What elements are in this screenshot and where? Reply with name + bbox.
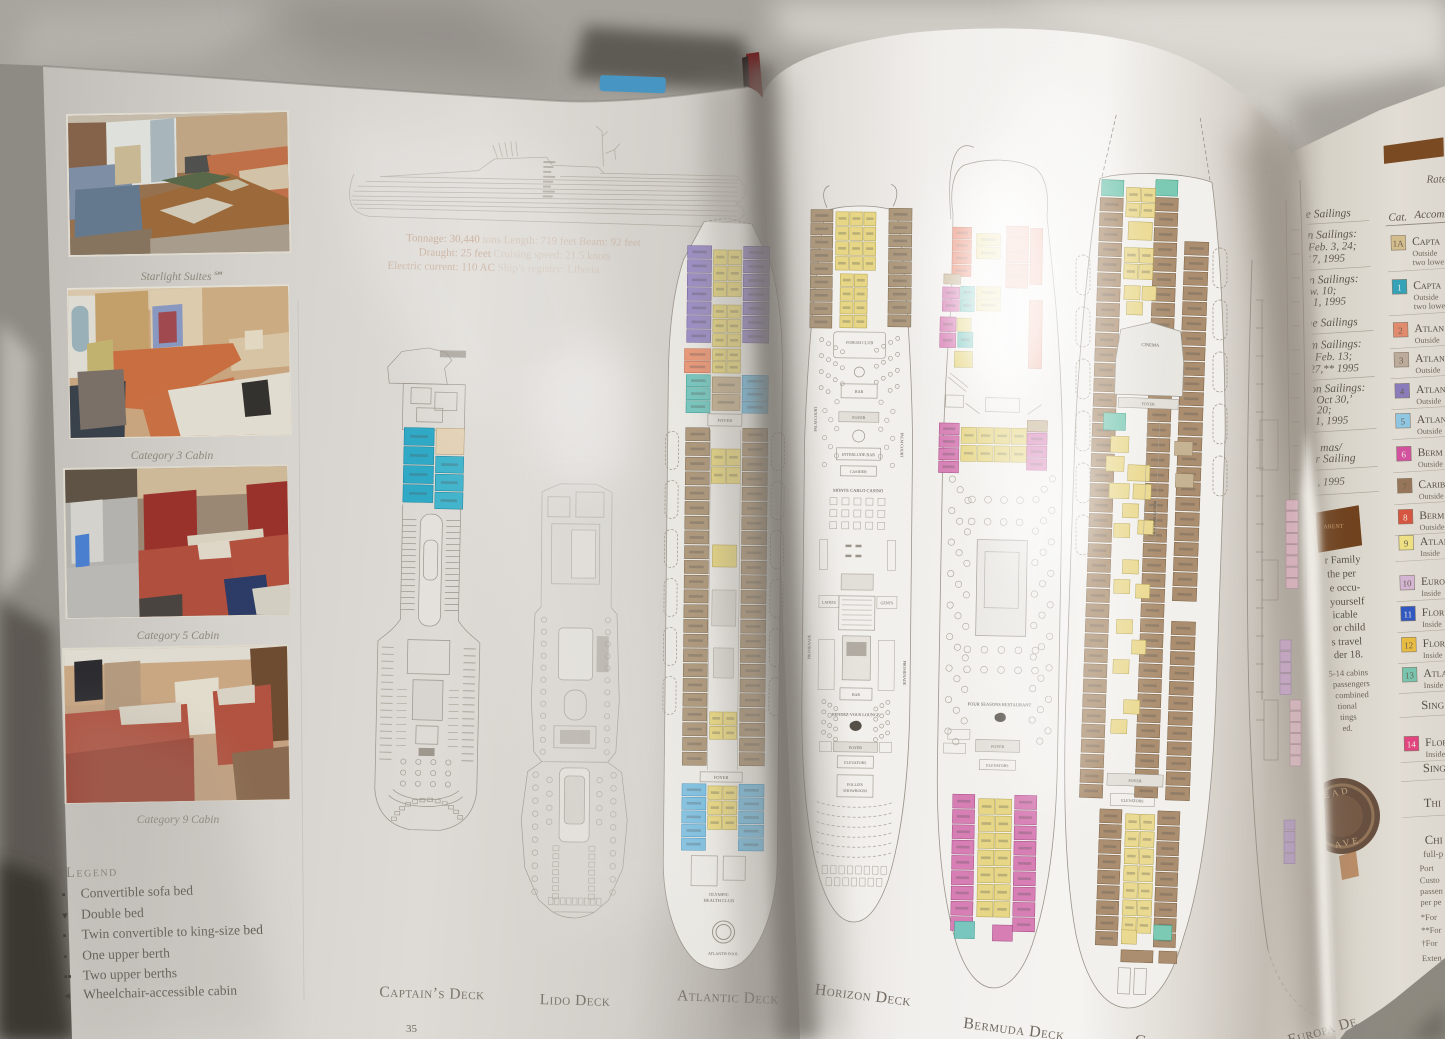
svg-text:1, 1995: 1, 1995: [1315, 414, 1349, 427]
svg-text:Inside: Inside: [1425, 749, 1445, 759]
svg-text:Inside: Inside: [1421, 589, 1441, 599]
svg-text:FOYER: FOYER: [849, 745, 862, 750]
svg-text:RENDEZ-VOUS LOUNGE: RENDEZ-VOUS LOUNGE: [832, 712, 880, 718]
svg-text:ELEVATORS: ELEVATORS: [986, 763, 1008, 768]
svg-text:ELEVATORS: ELEVATORS: [1121, 798, 1143, 804]
svg-text:Berm: Berm: [1417, 446, 1442, 459]
svg-text:passengers: passengers: [1333, 678, 1370, 689]
svg-text:†For: †For: [1421, 938, 1437, 948]
svg-text:Outside: Outside: [1417, 426, 1443, 436]
svg-text:Inside: Inside: [1423, 651, 1443, 661]
svg-text:▪: ▪: [61, 889, 65, 901]
svg-text:Outside: Outside: [1415, 335, 1441, 345]
svg-text:1, 1995: 1, 1995: [1313, 295, 1347, 308]
svg-text:14: 14: [1407, 739, 1417, 749]
svg-text:ATLANTIS POOL: ATLANTIS POOL: [708, 951, 739, 956]
svg-text:Outside: Outside: [1418, 459, 1444, 469]
svg-text:12: 12: [1404, 640, 1413, 650]
svg-text:Port: Port: [1419, 863, 1434, 873]
svg-text:two lowe: two lowe: [1413, 256, 1445, 267]
svg-text:8: 8: [1403, 512, 1408, 522]
svg-text:FOYER: FOYER: [852, 415, 865, 420]
svg-text:9: 9: [1404, 538, 1409, 548]
svg-text:CASHIER: CASHIER: [850, 469, 867, 474]
svg-text:1: 1: [1397, 282, 1402, 292]
svg-text:LADIES: LADIES: [822, 600, 836, 605]
svg-text:Berm: Berm: [1419, 509, 1444, 522]
svg-text:Rate: Rate: [1425, 173, 1445, 186]
svg-text:Chi: Chi: [1425, 833, 1443, 847]
svg-text:17, 1995: 17, 1995: [1306, 252, 1345, 265]
svg-text:6: 6: [1401, 449, 1406, 459]
svg-text:27,** 1995: 27,** 1995: [1309, 362, 1359, 376]
svg-text:Atlan: Atlan: [1415, 352, 1445, 365]
svg-text:Outside: Outside: [1415, 365, 1441, 375]
svg-text:FORUM CLUB: FORUM CLUB: [846, 340, 873, 345]
svg-text:m Sailings:: m Sailings:: [1309, 338, 1361, 352]
svg-text:Sing: Sing: [1423, 760, 1445, 775]
svg-text:Flor: Flor: [1422, 637, 1445, 650]
svg-text:Inside: Inside: [1420, 549, 1440, 559]
svg-text:r Family: r Family: [1324, 554, 1361, 566]
svg-text:SHOWROOM: SHOWROOM: [843, 788, 867, 793]
svg-text:Outside: Outside: [1419, 491, 1445, 501]
svg-text:Atlan: Atlan: [1416, 383, 1445, 396]
svg-text:11: 11: [1403, 609, 1412, 619]
svg-text:passen: passen: [1420, 886, 1444, 897]
svg-text:Category 3 Cabin: Category 3 Cabin: [131, 450, 214, 462]
svg-text:Captain’s Deck: Captain’s Deck: [379, 984, 485, 1004]
svg-text:◂: ◂: [64, 990, 70, 1002]
svg-text:5-14 cabins: 5-14 cabins: [1328, 667, 1368, 678]
svg-text:5: 5: [1400, 416, 1405, 426]
svg-text:Atlan: Atlan: [1417, 413, 1445, 426]
svg-text:▾: ▾: [62, 910, 68, 922]
svg-text:Euro: Euro: [1421, 575, 1445, 588]
svg-text:der 18.: der 18.: [1334, 649, 1364, 661]
svg-text:full-p: full-p: [1423, 849, 1444, 860]
svg-text:s travel: s travel: [1331, 636, 1362, 648]
svg-text:7: 7: [1402, 481, 1407, 491]
svg-text:r Sailing: r Sailing: [1315, 452, 1356, 465]
svg-text:he Sailings: he Sailings: [1307, 316, 1359, 330]
svg-text:Inside: Inside: [1422, 620, 1442, 630]
svg-text:Outside: Outside: [1419, 522, 1445, 532]
svg-text:▪: ▪: [63, 930, 67, 942]
svg-text:Feb. 3, 24;: Feb. 3, 24;: [1307, 240, 1357, 254]
svg-text:FOYER: FOYER: [1128, 778, 1142, 783]
svg-text:FOLLIES: FOLLIES: [847, 782, 863, 787]
svg-text:, 1995: , 1995: [1317, 476, 1345, 489]
svg-text:PROMENADE: PROMENADE: [902, 660, 907, 685]
svg-text:ELEVATORS: ELEVATORS: [844, 760, 866, 765]
svg-text:Outside: Outside: [1416, 396, 1442, 406]
svg-text:Atlan: Atlan: [1420, 535, 1445, 548]
svg-text:Flor: Flor: [1422, 606, 1445, 619]
svg-text:Capta: Capta: [1413, 279, 1441, 292]
svg-text:PALM COURT: PALM COURT: [899, 432, 904, 458]
svg-text:▪▪: ▪▪: [64, 971, 72, 983]
svg-text:▪: ▪: [63, 951, 67, 963]
svg-text:PALM COURT: PALM COURT: [813, 406, 818, 432]
svg-text:combined: combined: [1335, 689, 1370, 700]
svg-text:CINEMA: CINEMA: [1141, 342, 1160, 348]
svg-text:Flor: Flor: [1425, 736, 1445, 749]
svg-text:BAR: BAR: [852, 692, 861, 697]
svg-text:yourself: yourself: [1330, 596, 1365, 608]
svg-text:FOYER: FOYER: [1142, 401, 1156, 406]
svg-text:*For: *For: [1421, 912, 1437, 922]
svg-text:Atlan: Atlan: [1414, 322, 1444, 335]
svg-text:2: 2: [1398, 325, 1403, 335]
svg-text:10: 10: [1402, 578, 1412, 588]
svg-text:OLYMPIC: OLYMPIC: [709, 892, 729, 897]
svg-text:35: 35: [406, 1023, 418, 1035]
svg-text:Cat.: Cat.: [1388, 211, 1407, 223]
svg-text:tional: tional: [1338, 700, 1358, 711]
svg-text:arent: arent: [1323, 521, 1344, 531]
svg-text:Atlan: Atlan: [1423, 667, 1445, 680]
svg-text:4: 4: [1400, 386, 1405, 396]
svg-text:Category 5 Cabin: Category 5 Cabin: [137, 630, 220, 642]
svg-text:GENTS: GENTS: [880, 600, 893, 605]
svg-text:icable: icable: [1332, 609, 1358, 621]
svg-text:Inside: Inside: [1424, 680, 1444, 690]
svg-text:per pe: per pe: [1420, 897, 1441, 908]
svg-text:Sing: Sing: [1421, 697, 1445, 712]
svg-text:Capta: Capta: [1412, 235, 1440, 248]
svg-text:Thi: Thi: [1424, 796, 1442, 810]
svg-text:or child: or child: [1333, 622, 1366, 634]
svg-text:Accomm: Accomm: [1413, 208, 1445, 221]
svg-text:the per: the per: [1327, 568, 1357, 580]
svg-text:MONTE CARLO CASINO: MONTE CARLO CASINO: [833, 488, 884, 494]
svg-text:FOYER: FOYER: [714, 775, 729, 780]
svg-text:Custo: Custo: [1420, 875, 1440, 886]
svg-text:tings: tings: [1340, 711, 1357, 722]
svg-text:BAR: BAR: [855, 389, 864, 394]
svg-text:13: 13: [1405, 670, 1415, 680]
svg-text:ed.: ed.: [1342, 723, 1352, 733]
svg-text:1A: 1A: [1393, 238, 1405, 248]
svg-text:3: 3: [1399, 355, 1404, 365]
svg-text:Exten: Exten: [1422, 953, 1443, 964]
svg-text:HEALTH CLUB: HEALTH CLUB: [703, 898, 734, 903]
svg-text:Starlight Suites℠: Starlight Suites℠: [141, 271, 223, 283]
svg-text:two lowe: two lowe: [1414, 300, 1445, 311]
svg-text:INTERLUDE BAR: INTERLUDE BAR: [842, 452, 875, 457]
svg-text:Carib: Carib: [1418, 478, 1445, 491]
svg-text:e occu-: e occu-: [1329, 582, 1360, 594]
svg-text:Lido Deck: Lido Deck: [539, 991, 610, 1010]
svg-text:**For: **For: [1421, 925, 1442, 936]
